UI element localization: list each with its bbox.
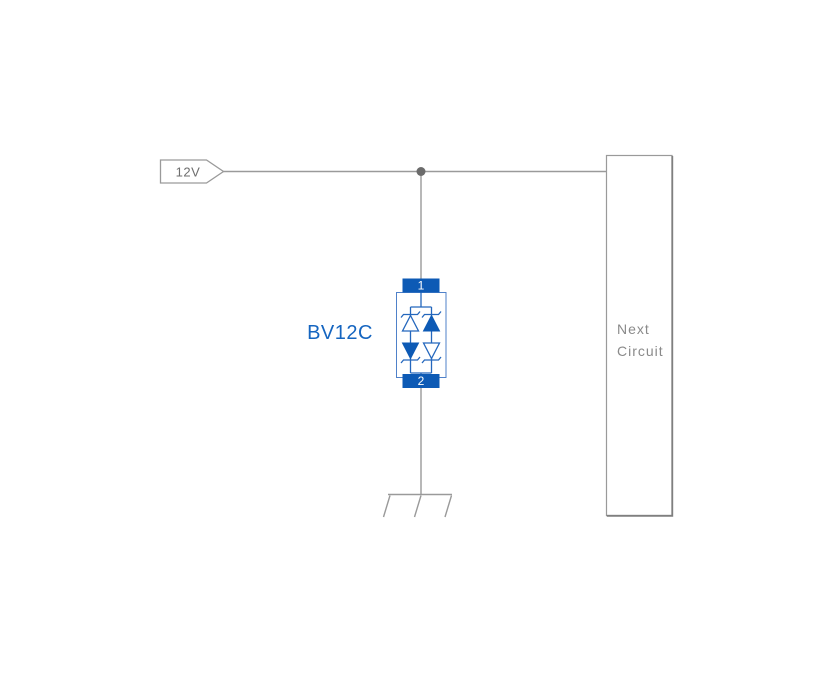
circuit-diagram-page: 12V 1 2 BV12C xyxy=(0,0,832,675)
tvs-device-symbol: 1 2 xyxy=(397,279,447,389)
junction-dot xyxy=(417,167,426,176)
ground-hatch-strokes xyxy=(384,496,452,518)
device-name-label: BV12C xyxy=(307,322,373,344)
next-circuit-label-line1: Next xyxy=(617,321,650,337)
pin-2-label: 2 xyxy=(418,374,425,388)
pin-1-label: 1 xyxy=(418,279,425,293)
next-circuit-block: Next Circuit xyxy=(607,156,673,516)
schematic-canvas: 12V 1 2 BV12C xyxy=(0,0,832,675)
ground-symbol xyxy=(384,495,453,518)
next-circuit-label-line2: Circuit xyxy=(617,343,664,359)
power-net-label: 12V xyxy=(176,165,201,180)
power-net-flag: 12V xyxy=(161,160,224,183)
